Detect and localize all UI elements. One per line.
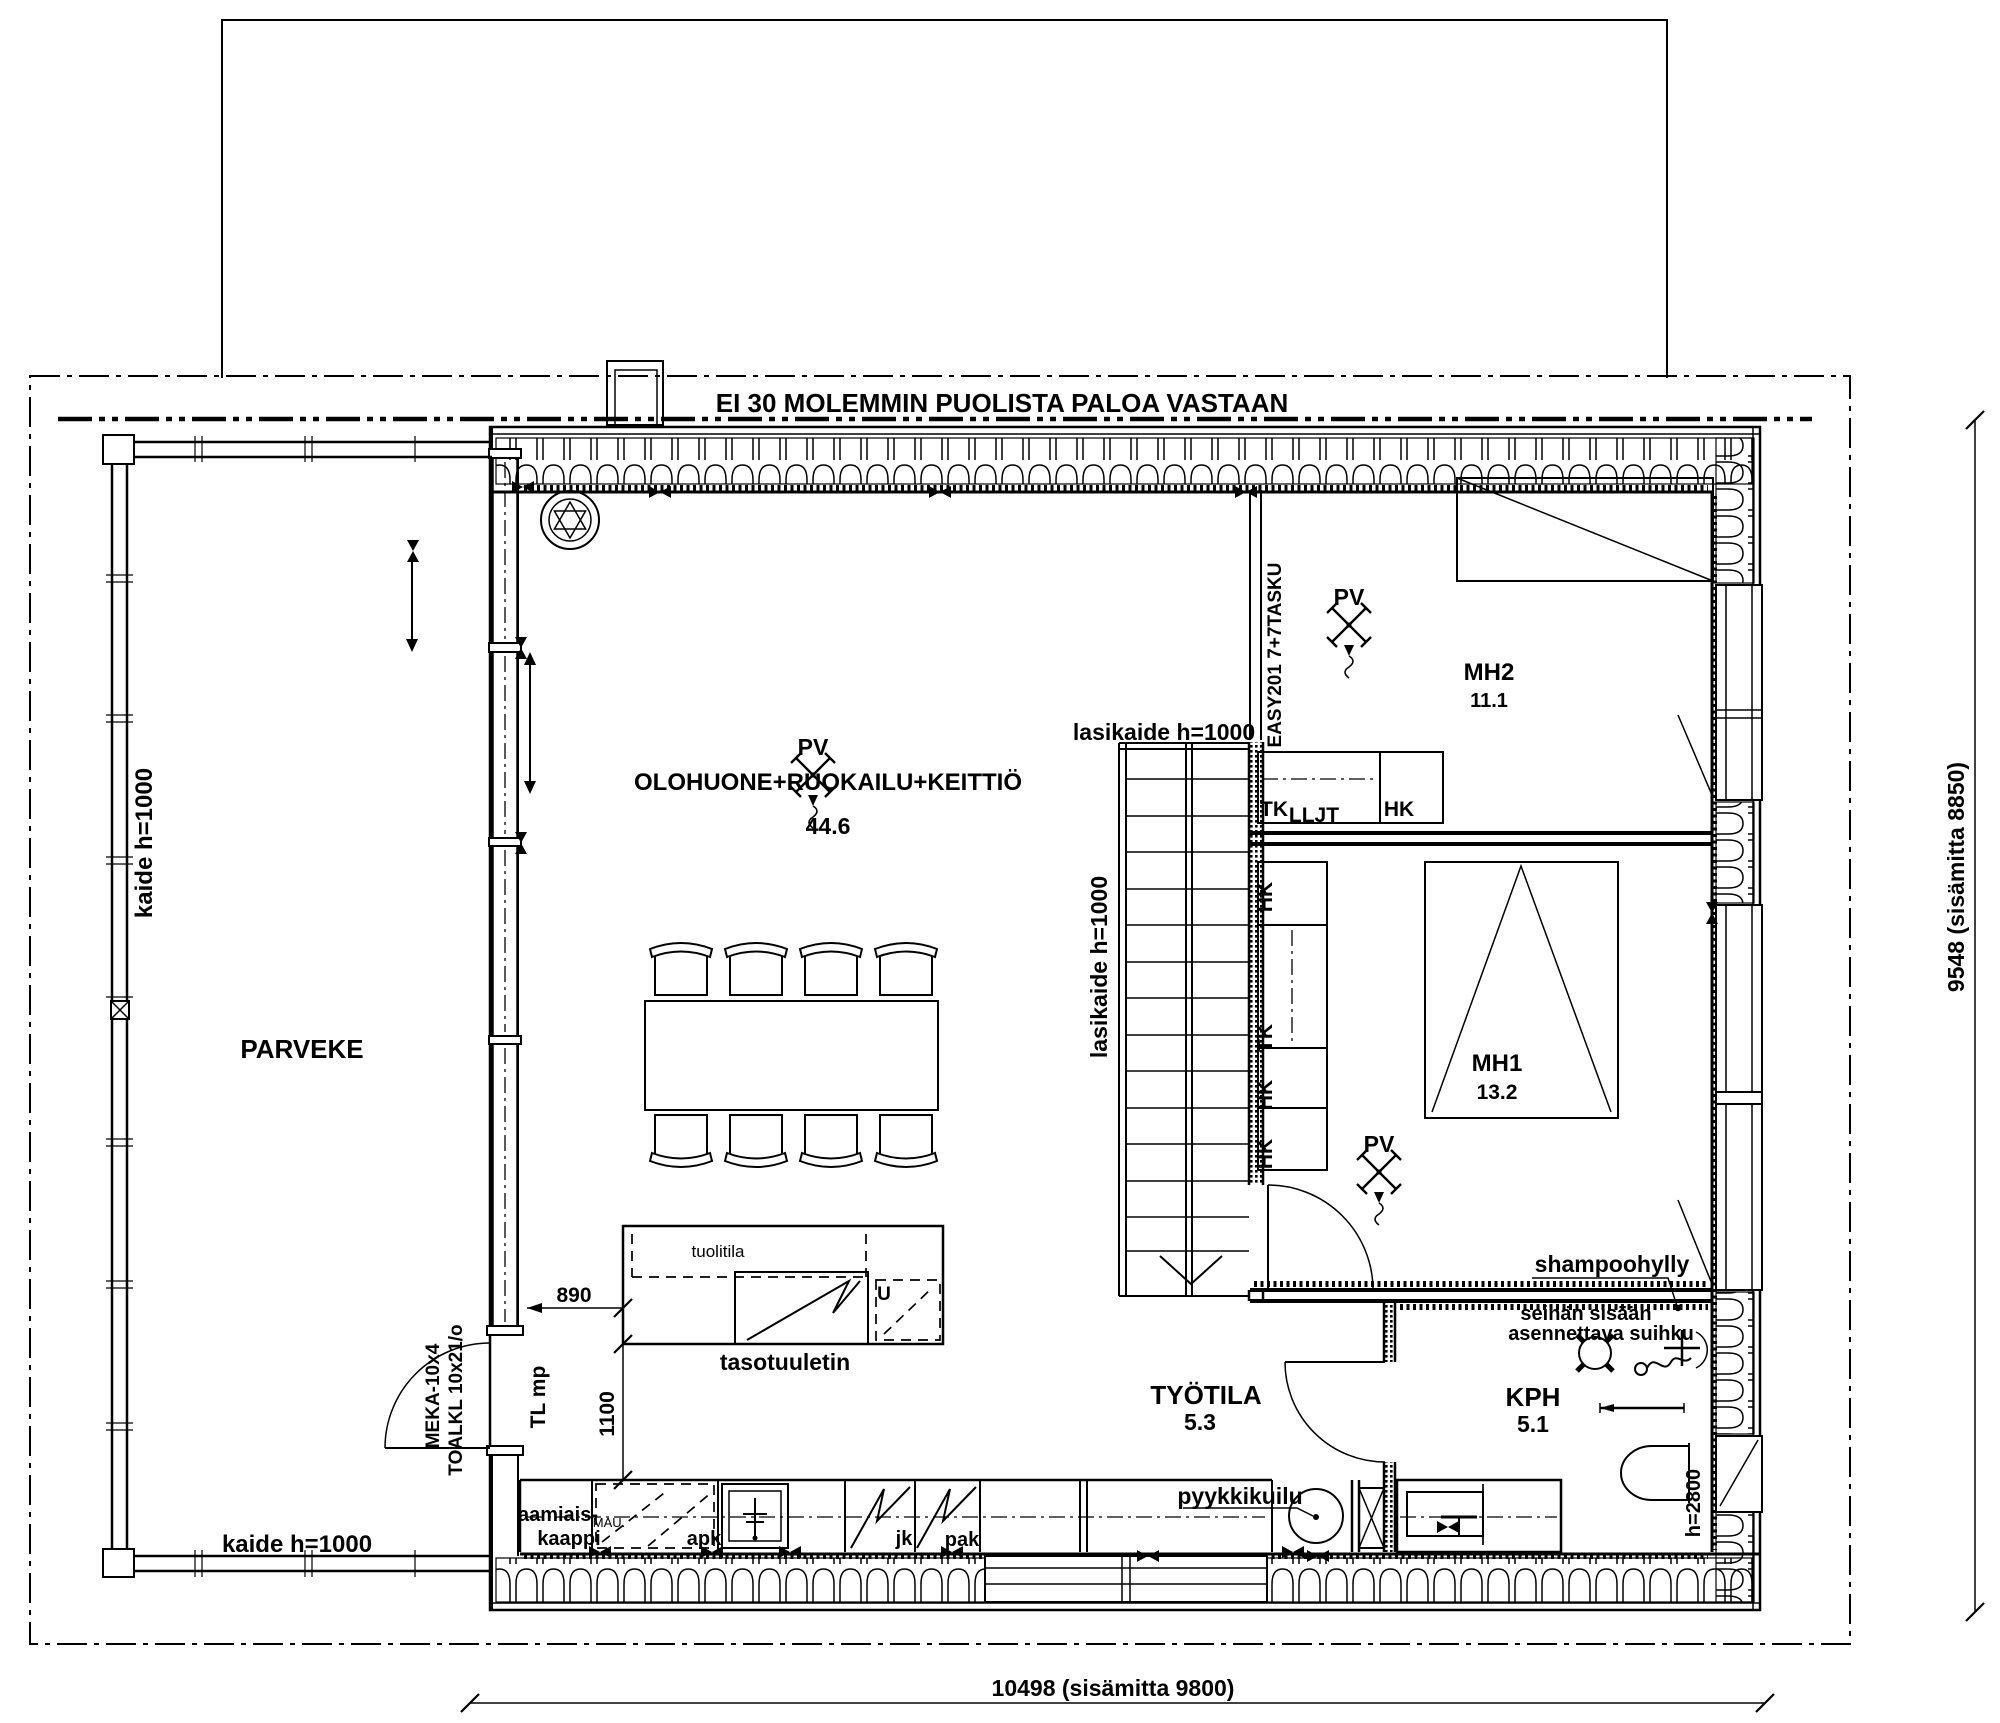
- toilet: [1621, 1443, 1689, 1503]
- room-label-bedroom1: MH1: [1472, 1050, 1523, 1077]
- laundry-chute-label: pyykkikuilu: [1177, 1483, 1302, 1509]
- dining-set: [645, 943, 938, 1167]
- dim-overall-width: 10498 (sisämitta 9800): [992, 1675, 1235, 1701]
- dim-overall-height: 9548 (sisämitta 8850): [1943, 762, 1969, 992]
- room-area-workspace: 5.3: [1184, 1409, 1216, 1435]
- counter-fan-label: tasotuuletin: [720, 1349, 850, 1375]
- room-label-bedroom2: MH2: [1464, 659, 1515, 686]
- railing-label-bottom: kaide h=1000: [222, 1531, 372, 1558]
- pv-symbol-bedroom1: [1357, 1150, 1401, 1225]
- room-label-bathroom: KPH: [1506, 1382, 1561, 1412]
- wardrobe-lljt-bedroom2: LLJT: [1289, 804, 1339, 827]
- dishwasher-label: apk: [687, 1528, 722, 1550]
- dim-890: 890: [556, 1284, 591, 1307]
- bathroom-door: [1285, 1362, 1385, 1462]
- tl-mp-label: TL mp: [527, 1366, 550, 1429]
- bedroom1-bed: [1425, 862, 1618, 1118]
- floor-plan-drawing: EI 30 MOLEMMIN PUOLISTA PALOA VASTAAN PA…: [0, 0, 2000, 1723]
- shower-note-1: seinän sisään: [1520, 1303, 1651, 1325]
- shampoo-shelf-label: shampoohylly: [1535, 1251, 1690, 1277]
- mau-label: MAU.: [593, 1515, 626, 1530]
- room-area-living: 44.6: [806, 813, 851, 839]
- wardrobe-tk-1: TK: [1254, 1024, 1277, 1052]
- sliding-door-code: EASY201 7+7TASKU: [1265, 563, 1286, 748]
- freezer-label: pak: [945, 1529, 980, 1551]
- glass-railing-label-left: lasikaide h=1000: [1086, 876, 1112, 1058]
- breakfast-cabinet-1: aamiais-: [518, 1504, 598, 1526]
- railing-label-left: kaide h=1000: [131, 768, 158, 918]
- dim-1100: 1100: [596, 1391, 619, 1437]
- door-code-1: MEKA-10x4: [423, 1343, 444, 1448]
- room-area-bedroom2: 11.1: [1470, 690, 1508, 712]
- door-code-2: TOALKL 10x21/o: [446, 1324, 467, 1475]
- washbasin-counter: [1397, 1480, 1561, 1552]
- wardrobe-hk-1: HK: [1254, 882, 1277, 912]
- shower-note-2: asennettava suihku: [1508, 1323, 1694, 1345]
- pv-label-living: PV: [798, 734, 829, 760]
- fireplace: [541, 491, 599, 549]
- wardrobe-hk-2: HK: [1254, 1080, 1277, 1110]
- wardrobe-hk-3: HK: [1254, 1139, 1277, 1169]
- u-mark-label: U: [877, 1284, 891, 1305]
- bedroom1-door: [1268, 1185, 1373, 1290]
- fridge-label: jk: [895, 1528, 914, 1550]
- wardrobe-tk-bedroom2: TK: [1260, 798, 1288, 821]
- pv-label-bedroom1: PV: [1364, 1131, 1395, 1157]
- pv-label-bedroom2: PV: [1334, 584, 1365, 610]
- chair-space-label: tuolitila: [692, 1242, 745, 1261]
- labels: EI 30 MOLEMMIN PUOLISTA PALOA VASTAAN PA…: [131, 388, 1969, 1701]
- floor-plan-page: EI 30 MOLEMMIN PUOLISTA PALOA VASTAAN PA…: [0, 0, 2000, 1723]
- pv-symbol-bedroom2: [1327, 603, 1371, 678]
- breakfast-cabinet-2: kaappi: [537, 1528, 600, 1550]
- dining-table: [645, 1001, 938, 1110]
- fire-rating-note: EI 30 MOLEMMIN PUOLISTA PALOA VASTAAN: [716, 388, 1289, 418]
- sink: [722, 1484, 788, 1548]
- interior-walls: [1249, 490, 1712, 1552]
- room-area-bedroom1: 13.2: [1477, 1081, 1518, 1104]
- room-label-living: OLOHUONE+RUOKAILU+KEITTIÖ: [634, 769, 1022, 796]
- staircase: [1119, 743, 1249, 1296]
- room-area-bathroom: 5.1: [1517, 1411, 1549, 1437]
- ceiling-height-label: h=2800: [1683, 1469, 1705, 1537]
- railing-post: [111, 1001, 129, 1019]
- room-label-workspace: TYÖTILA: [1150, 1380, 1261, 1410]
- cooktop-symbol: [747, 1281, 860, 1340]
- room-label-balcony: PARVEKE: [240, 1034, 363, 1064]
- glass-railing-label-top: lasikaide h=1000: [1073, 719, 1255, 745]
- wardrobe-hk-bedroom2: HK: [1384, 798, 1414, 821]
- kitchen-island: [623, 1226, 943, 1344]
